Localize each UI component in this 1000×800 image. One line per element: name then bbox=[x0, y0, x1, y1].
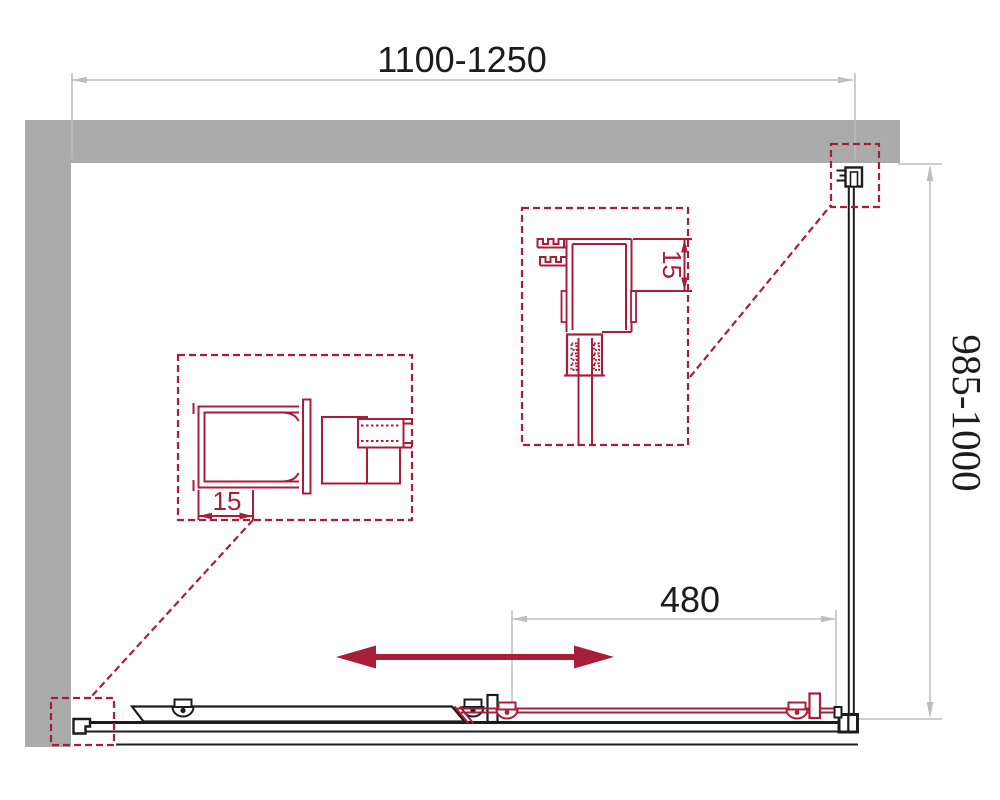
wall-profile-adjustment-label: 15 bbox=[657, 250, 687, 279]
wall-serration-lower bbox=[540, 257, 567, 266]
detail-left-profile: 15 bbox=[194, 400, 413, 521]
leader-left bbox=[91, 520, 253, 697]
glass-clamp bbox=[564, 335, 605, 447]
leader-right bbox=[690, 205, 831, 377]
left-profile-adjustment-label: 15 bbox=[213, 486, 242, 516]
roller-fixed-1 bbox=[173, 700, 194, 717]
dimension-overall-depth: 985-1000 bbox=[857, 164, 990, 719]
guide-tab-red bbox=[810, 694, 821, 719]
brush-seal-channel bbox=[358, 419, 404, 448]
dim-arrow-up bbox=[927, 165, 934, 181]
dimension-door-panel: 480 bbox=[512, 579, 836, 707]
dim-arrow-left bbox=[72, 77, 87, 84]
top-wall-bracket bbox=[837, 168, 863, 187]
left-wall bbox=[25, 163, 71, 747]
walls bbox=[25, 120, 900, 747]
dim-arrow-left bbox=[512, 616, 527, 623]
dim-arrow-right bbox=[838, 77, 853, 84]
wall-serration-upper bbox=[538, 239, 567, 248]
bottom-track bbox=[74, 719, 859, 745]
dimension-left-profile-adjustment: 15 bbox=[199, 486, 254, 520]
technical-drawing-canvas: 1100-1250 985-1000 480 bbox=[0, 0, 1000, 800]
door-panel-width-label: 480 bbox=[660, 579, 720, 620]
roller-door-2 bbox=[787, 703, 808, 719]
fixed-glass-panel-plan bbox=[132, 695, 498, 722]
dimension-wall-profile-adjustment: 15 bbox=[633, 239, 692, 291]
top-wall bbox=[25, 120, 900, 163]
shower-enclosure-diagram: 1100-1250 985-1000 480 bbox=[0, 0, 1000, 800]
dim-arrow-right bbox=[821, 616, 836, 623]
slide-direction-arrow-icon bbox=[336, 646, 614, 669]
detail-top-profile: 15 bbox=[538, 239, 693, 446]
overall-width-label: 1100-1250 bbox=[377, 39, 547, 80]
fixed-side-panel-section bbox=[835, 168, 863, 733]
overall-depth-label: 985-1000 bbox=[944, 334, 990, 491]
roller-door-1 bbox=[497, 703, 518, 719]
dim-arrow-down bbox=[927, 702, 934, 718]
